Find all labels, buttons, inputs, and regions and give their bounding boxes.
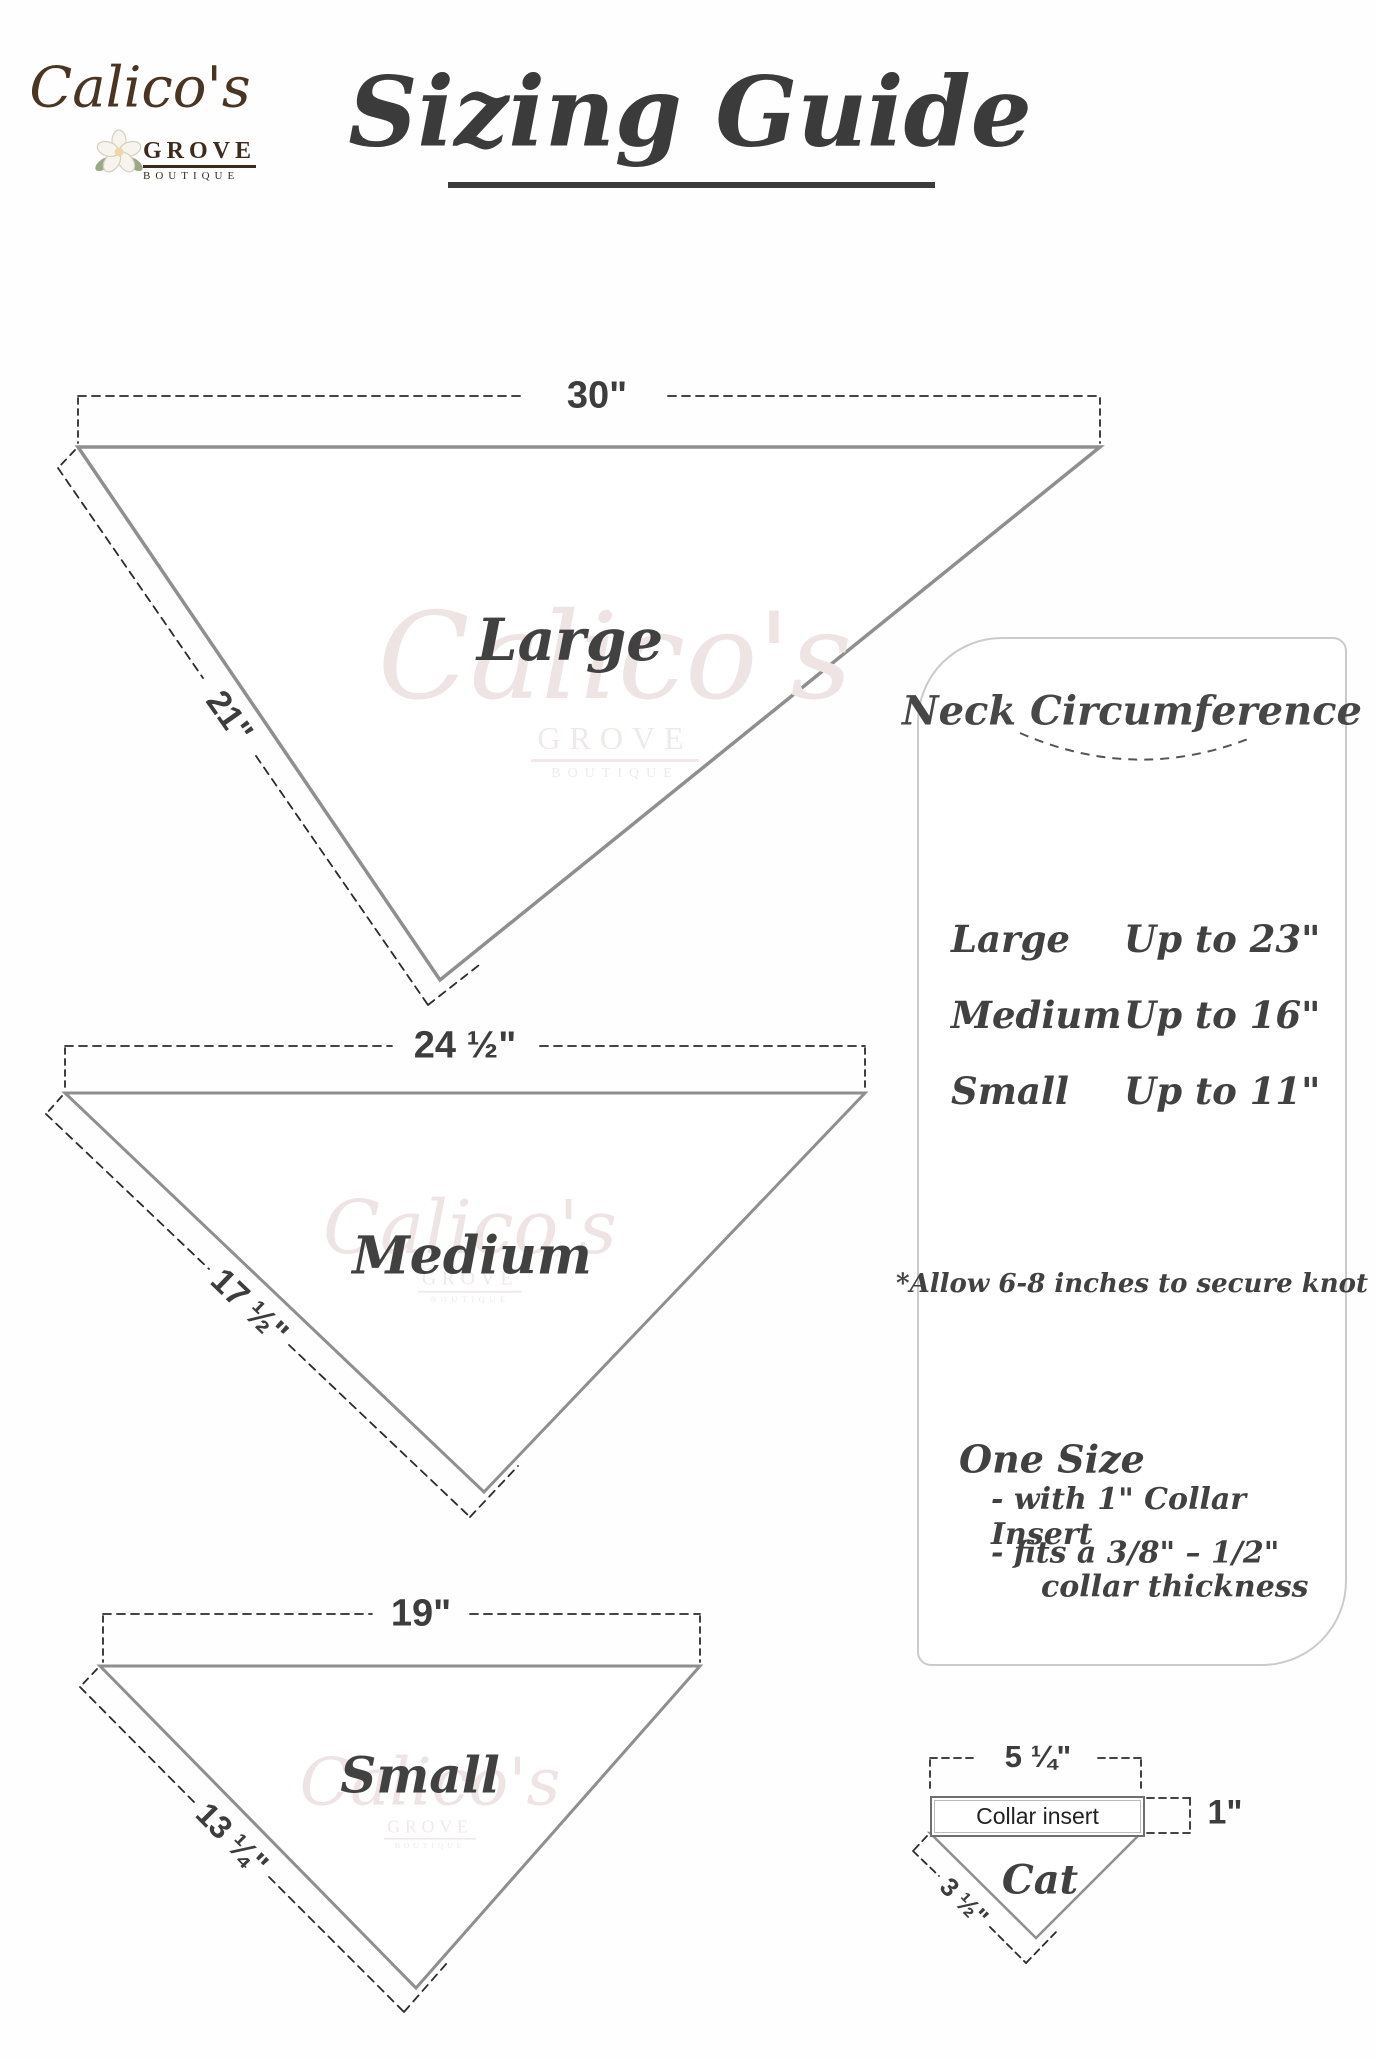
medium-size-label: Medium — [352, 1226, 592, 1287]
small-size-label: Small — [340, 1746, 499, 1805]
small-triangle-shape — [80, 1614, 700, 2012]
one-size-line2: - fits a 3/8" – 1/2" — [991, 1536, 1279, 1571]
logo-boutique-text: BOUTIQUE — [143, 170, 239, 182]
one-size-title: One Size — [959, 1437, 1145, 1482]
size-row-large-label: Large — [951, 917, 1070, 961]
cat-height-label: 1" — [1207, 1794, 1242, 1833]
title-underline — [448, 182, 935, 188]
panel-title-dashed-arc — [1012, 727, 1256, 779]
size-row-small-value: Up to 11" — [1124, 1069, 1320, 1113]
cat-width-label: 5 ¼" — [1005, 1739, 1071, 1775]
cat-size-label: Cat — [1002, 1857, 1078, 1904]
collar-insert-label: Collar insert — [976, 1803, 1099, 1830]
large-width-label: 30" — [567, 375, 627, 418]
size-row-medium-label: Medium — [951, 993, 1121, 1037]
large-size-label: Large — [477, 606, 663, 674]
logo-wordmark: Calico's — [29, 56, 250, 121]
medium-width-label: 24 ½" — [414, 1025, 517, 1068]
size-row-medium-value: Up to 16" — [1124, 993, 1320, 1037]
neck-circumference-panel: Neck Circumference Large Up to 23" Mediu… — [917, 637, 1347, 1666]
small-width-label: 19" — [391, 1593, 451, 1636]
one-size-line3: collar thickness — [1041, 1570, 1309, 1605]
collar-insert-box: Collar insert — [930, 1796, 1145, 1837]
sizing-guide-page: Calico's GROVE BOUTIQUE Calico's GROVE B… — [0, 0, 1376, 2060]
size-row-large-value: Up to 23" — [1124, 917, 1320, 961]
logo-grove-text: GROVE — [143, 138, 256, 165]
size-row-small-label: Small — [951, 1069, 1069, 1113]
page-title: Sizing Guide — [348, 56, 1032, 169]
flower-icon — [93, 130, 145, 175]
knot-allowance-note: *Allow 6-8 inches to secure knot — [896, 1269, 1368, 1299]
logo-grove-label: GROVE — [143, 138, 256, 168]
